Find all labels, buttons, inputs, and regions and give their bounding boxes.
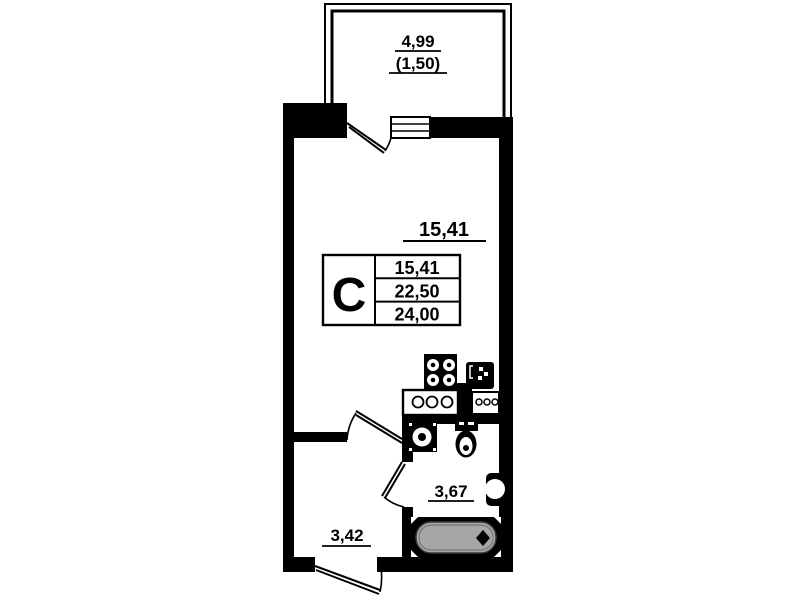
wall-top-left-block [283,103,347,138]
kitchen-counter [403,390,458,415]
unit-type-label: С [332,269,367,322]
wash-basin-icon [485,473,513,506]
floor-plan-canvas: С 15,41 22,50 24,00 4,99 (1,50) 15,41 3,… [0,0,799,600]
room-area-label: 15,41 [419,219,469,241]
bathtub-icon [411,517,501,557]
legend-table: С 15,41 22,50 24,00 [323,255,460,325]
door-swing-arc [347,413,356,440]
legend-total-area-with-balcony: 24,00 [394,305,439,325]
hallway-area-label: 3,42 [330,526,363,545]
legend-living-area: 15,41 [394,258,439,278]
room-door-icon [347,411,402,443]
kitchen-sink-icon [466,362,494,389]
vent-shaft [457,383,472,424]
washing-machine-icon [408,422,437,452]
bathroom-door-icon [382,462,405,507]
wall-bottom-left [283,557,315,572]
walls [283,103,513,572]
balcony-reduced-area-label: (1,50) [396,54,440,73]
door-swing-arc [384,497,404,507]
bathroom-area-label: 3,67 [434,482,467,501]
balcony-door-icon [347,123,391,153]
toilet-icon [455,419,478,458]
floor-plan-svg: С 15,41 22,50 24,00 4,99 (1,50) 15,41 3,… [0,0,799,600]
stove-icon [424,354,457,391]
wall-bottom-right [377,557,513,572]
wall-left [283,103,294,572]
balcony-window-icon [391,117,430,138]
door-swing-arc [385,138,391,151]
entrance-door-icon [315,566,382,594]
wall-room-hallway [294,432,347,442]
balcony-area-label: 4,99 [401,32,434,51]
legend-total-area: 22,50 [394,282,439,302]
kitchen-counter-small [472,392,499,414]
